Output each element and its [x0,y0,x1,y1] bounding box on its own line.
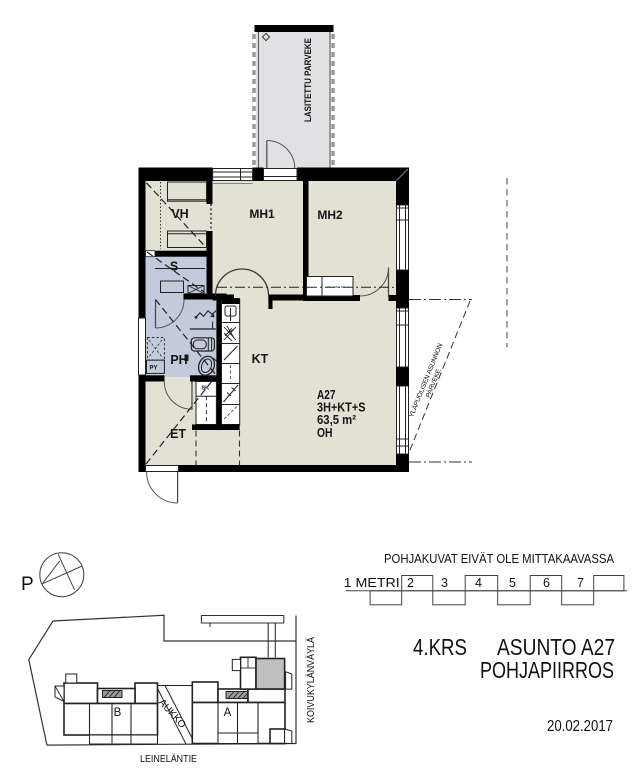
svg-text:1 METRI: 1 METRI [344,576,400,590]
svg-text:S: S [170,260,178,274]
svg-text:POHJAPIIRROS: POHJAPIIRROS [480,657,614,683]
svg-text:MH2: MH2 [317,208,343,222]
svg-text:B: B [114,707,122,719]
svg-text:KT: KT [252,352,269,366]
svg-text:P: P [21,574,34,595]
svg-text:PY: PY [150,366,158,372]
svg-text:6: 6 [543,576,550,590]
svg-text:OH: OH [317,426,333,440]
svg-text:20.02.2017: 20.02.2017 [547,718,613,735]
svg-text:ET: ET [170,427,186,441]
svg-text:4.KRS: 4.KRS [413,634,467,660]
svg-text:4: 4 [475,576,482,590]
svg-text:LEINELÄNTIE: LEINELÄNTIE [140,753,197,765]
svg-text:LASITETTU PARVEKE: LASITETTU PARVEKE [303,38,314,122]
svg-text:POHJAKUVAT EIVÄT OLE MITTAKAAV: POHJAKUVAT EIVÄT OLE MITTAKAAVASSA [384,552,615,566]
svg-text:A: A [224,707,232,719]
svg-text:3: 3 [441,576,448,590]
svg-text:MH1: MH1 [249,207,275,221]
svg-text:KOIVUKYLÄNVÄYLÄ: KOIVUKYLÄNVÄYLÄ [305,637,317,723]
svg-text:2: 2 [407,576,414,590]
svg-text:7: 7 [577,576,584,590]
svg-text:VH: VH [171,207,188,221]
svg-text:63,5 m²: 63,5 m² [317,413,356,427]
svg-text:PH: PH [170,353,187,367]
svg-text:5: 5 [509,576,516,590]
